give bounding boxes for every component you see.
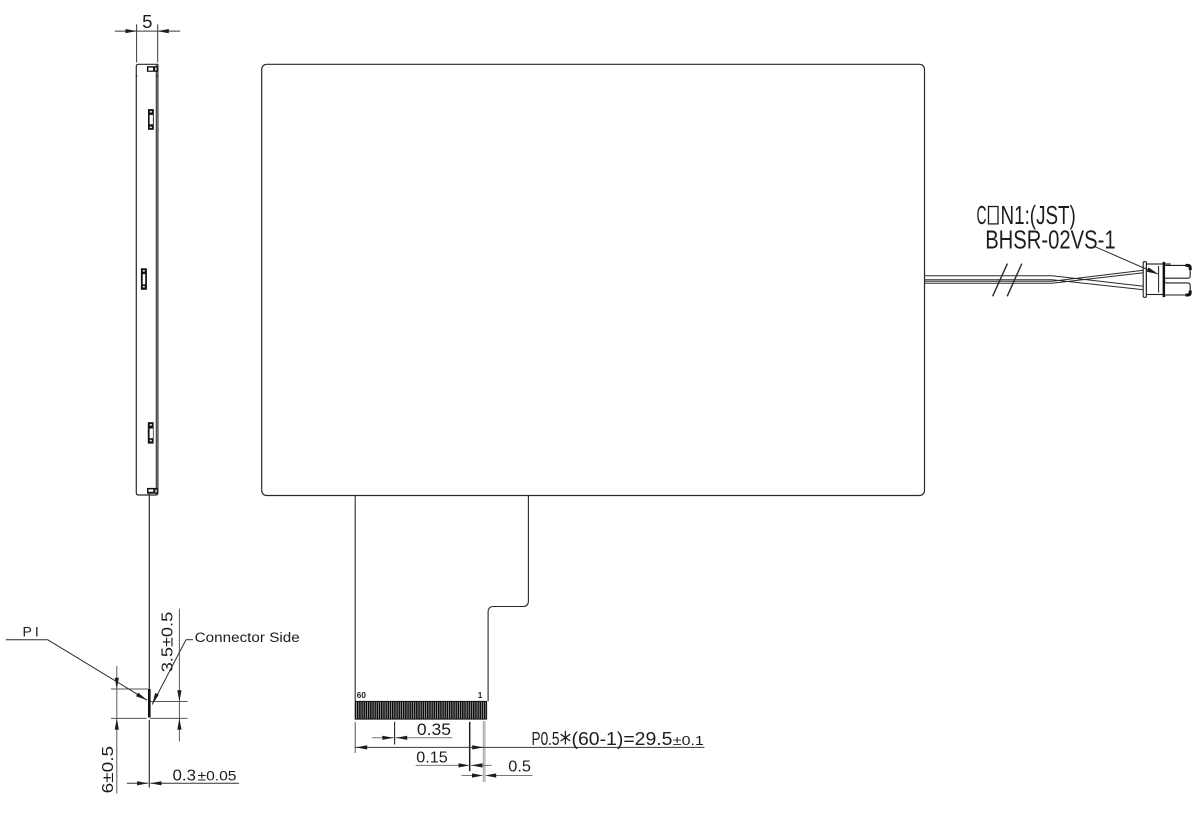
svg-text:PI: PI: [23, 624, 42, 640]
svg-text:BHSR-02VS-1: BHSR-02VS-1: [985, 224, 1115, 254]
svg-text:Connector Side: Connector Side: [195, 630, 300, 645]
svg-text:0.35: 0.35: [417, 721, 451, 739]
svg-text:0.3: 0.3: [173, 768, 197, 785]
svg-text:60: 60: [357, 691, 367, 700]
svg-text:(60-1)=29.5: (60-1)=29.5: [572, 729, 673, 749]
svg-text:1: 1: [478, 691, 483, 700]
svg-text:5: 5: [142, 11, 152, 32]
svg-text:P0.5: P0.5: [532, 729, 560, 749]
svg-text:6±0.5: 6±0.5: [100, 746, 117, 794]
svg-text:0.15: 0.15: [416, 749, 447, 766]
svg-text:±0.05: ±0.05: [198, 769, 237, 784]
svg-text:±0.1: ±0.1: [673, 733, 704, 748]
svg-text:0.5: 0.5: [508, 758, 531, 775]
